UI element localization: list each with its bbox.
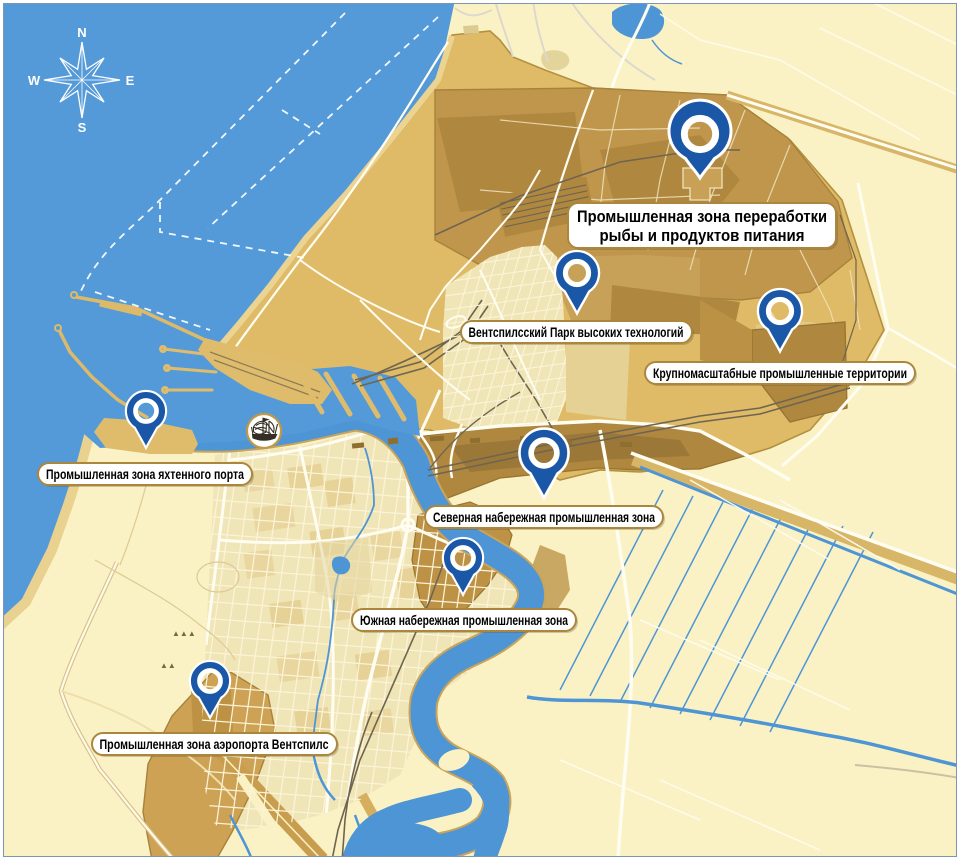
svg-text:▲▲: ▲▲ (160, 661, 176, 670)
svg-text:E: E (126, 73, 135, 88)
svg-text:W: W (28, 73, 41, 88)
svg-text:Промышленная зона переработки: Промышленная зона переработки (577, 207, 827, 226)
svg-text:▲▲▲: ▲▲▲ (172, 629, 196, 638)
svg-text:Крупномасштабные промышленные: Крупномасштабные промышленные территории (653, 365, 907, 381)
svg-text:Промышленная зона яхтенного по: Промышленная зона яхтенного порта (46, 466, 244, 482)
svg-text:N: N (77, 25, 86, 40)
svg-text:Южная набережная промышленная: Южная набережная промышленная зона (360, 612, 568, 628)
svg-text:Северная набережная промышленн: Северная набережная промышленная зона (433, 509, 655, 525)
svg-text:Вентспилсский Парк высоких тех: Вентспилсский Парк высоких технологий (469, 324, 684, 340)
svg-text:рыбы и продуктов питания: рыбы и продуктов питания (600, 226, 805, 245)
svg-text:S: S (78, 120, 87, 135)
svg-text:Промышленная зона аэропорта Ве: Промышленная зона аэропорта Вентспилс (100, 736, 329, 752)
